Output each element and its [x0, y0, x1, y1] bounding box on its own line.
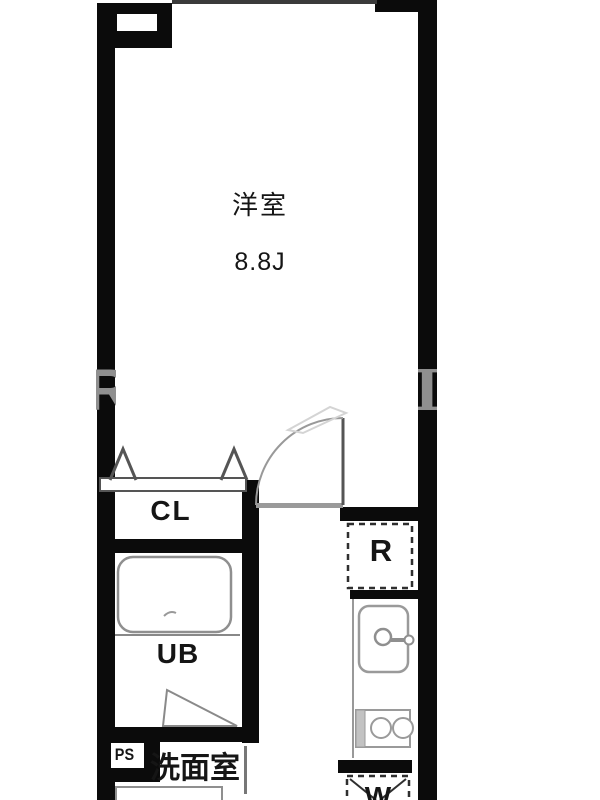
floor-plan-drawing [0, 0, 600, 800]
washbasin-icon [116, 787, 222, 800]
faucet-knob-icon [405, 636, 414, 645]
watermark-shape [288, 407, 346, 433]
door-swing-arc [256, 418, 343, 505]
wall-notch [117, 14, 157, 31]
wall-cl-ub-divider [97, 539, 259, 553]
watermark-letter-left: R [96, 361, 116, 427]
floor-plan: 洋室 8.8J CL UB PS 洗面室 R W R I [0, 0, 600, 800]
closet-opening [100, 478, 246, 491]
wall-below-kitchen [338, 760, 412, 773]
door-threshold [256, 503, 343, 508]
pipe-space-label: PS [110, 746, 139, 763]
bath-door-icon [163, 690, 237, 726]
wall-ub-washroom-divider [97, 727, 259, 742]
faucet-icon [375, 629, 391, 645]
refrigerator-label: R [355, 535, 407, 566]
wall-partition [242, 480, 259, 743]
bifold-door-icon [221, 449, 247, 480]
washroom-label: 洗面室 [145, 754, 245, 784]
unit-bath-label: UB [148, 640, 208, 668]
western-room-area: 8.8J [225, 250, 295, 275]
stove-side-strip [356, 710, 365, 747]
wall-room-bottom [340, 507, 420, 521]
washer-label: W [352, 783, 404, 800]
closet-label: CL [141, 497, 201, 525]
western-room-label: 洋室 [225, 192, 295, 218]
watermark-letter-right: I [418, 362, 437, 426]
burner-icon [393, 718, 413, 738]
burner-icon [371, 718, 391, 738]
bathtub-icon [118, 557, 231, 632]
window-line [172, 0, 377, 4]
wall-below-refrigerator [350, 590, 418, 599]
